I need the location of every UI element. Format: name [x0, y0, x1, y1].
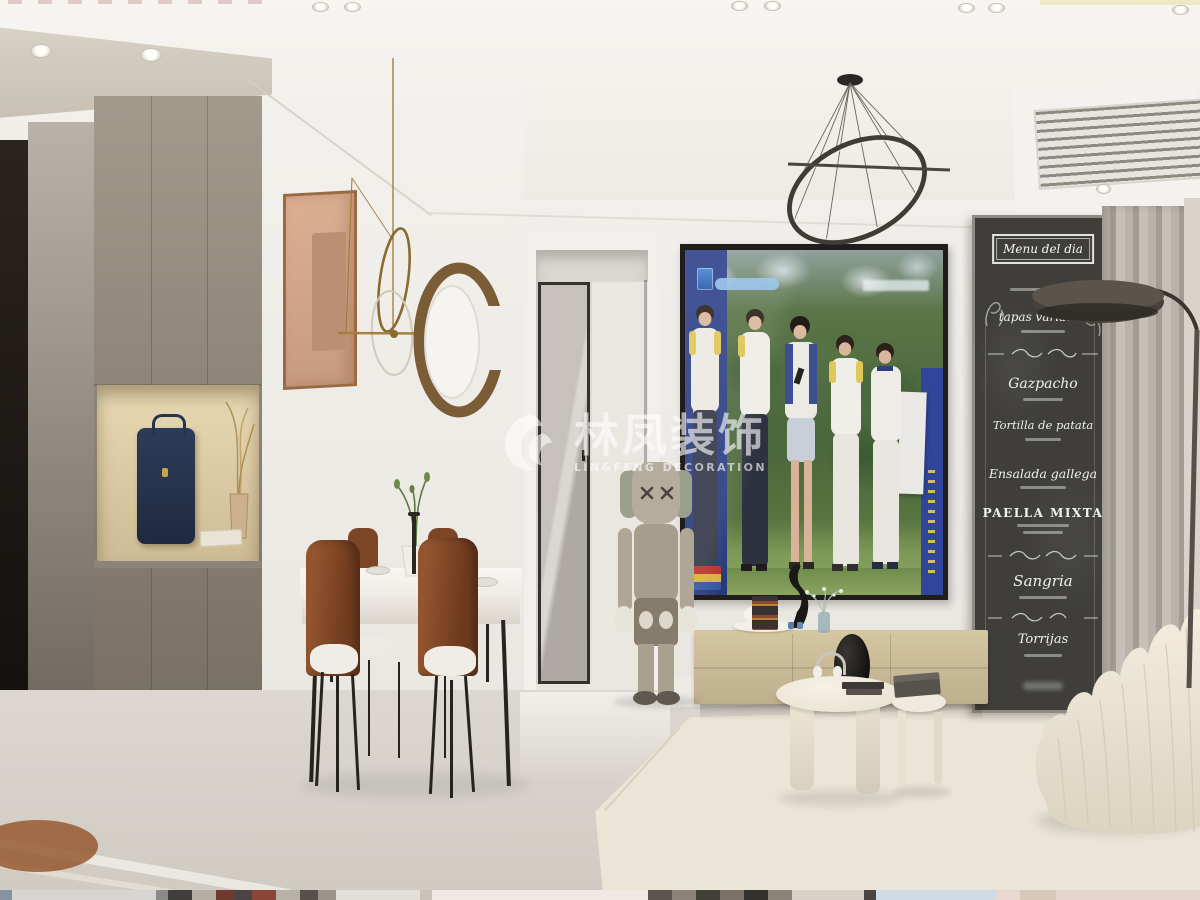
bottom-filmstrip [0, 890, 1200, 900]
ring-chandelier [772, 74, 950, 264]
watermark: 林凤装饰 LIN&FENG DECORATION [500, 412, 767, 474]
brand-name-en: LIN&FENG DECORATION [574, 461, 767, 474]
wall-ring-decor [419, 268, 520, 412]
top-edge-artifact [8, 0, 268, 4]
top-edge-artifact [1040, 0, 1200, 5]
living-room-interior-render: Menu del dia tapas variadas Gazpacho Tor… [0, 0, 1200, 900]
arc-floor-lamp [1032, 280, 1197, 688]
brand-text-block: 林凤装饰 LIN&FENG DECORATION [574, 413, 767, 474]
brand-logo-icon [500, 412, 562, 474]
brand-name-cn: 林凤装饰 [574, 413, 767, 458]
